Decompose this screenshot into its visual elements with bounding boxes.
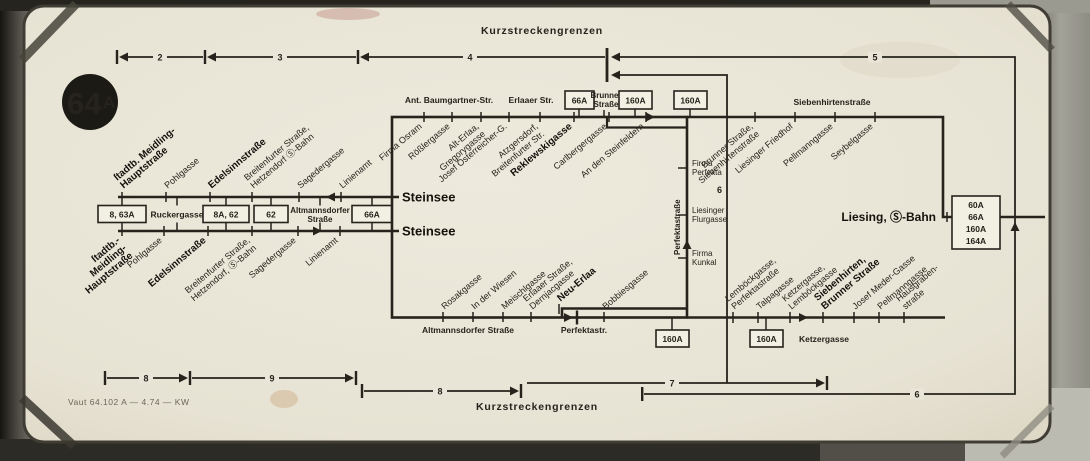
terminal-164a: 164A xyxy=(966,236,986,246)
stain-tan xyxy=(270,390,298,408)
terminal-60a: 60A xyxy=(968,200,984,210)
badge-number: 64 xyxy=(67,86,102,121)
connection-66a: 66A xyxy=(364,210,380,220)
line-badge: 64 A xyxy=(62,74,118,130)
connection-8-63a: 8, 63A xyxy=(109,210,134,220)
stop-liesinger-flurgasse: Liesinger Flurgasse xyxy=(692,206,728,224)
segment-8b: 8 xyxy=(437,387,442,397)
stop-line1: Liesinger xyxy=(692,206,725,215)
box-160a-south-label-1: 160A xyxy=(662,334,682,344)
stain-pink xyxy=(316,8,380,20)
top-scale-title: Kurzstreckengrenzen xyxy=(481,25,603,37)
label-erlaaer-str: Erlaaer Str. xyxy=(509,95,554,105)
label-perfektastr: Perfektastr. xyxy=(561,325,607,335)
segment-7: 7 xyxy=(669,379,674,389)
terminus-liesing: Liesing, Ⓢ-Bahn xyxy=(841,209,936,224)
segment-3: 3 xyxy=(277,53,282,63)
connection-ruckergasse: Ruckergasse xyxy=(151,210,204,220)
sign-svg: 64 A Kurzstreckengrenzen 2 3 4 5 6 8, 63… xyxy=(0,0,1090,461)
label-brunner-1: Brunner xyxy=(590,91,621,100)
terminus-steinsee-lower: Steinsee xyxy=(402,224,455,239)
label-ant-baumgartner: Ant. Baumgartner-Str. xyxy=(405,95,493,105)
label-siebenhirtenstrasse: Siebenhirtenstraße xyxy=(794,97,871,107)
terminal-66a: 66A xyxy=(968,212,984,222)
stop-line2: Kunkal xyxy=(692,258,717,267)
segment-4: 4 xyxy=(467,53,472,63)
label-altmannsdorfer-sued: Altmannsdorfer Straße xyxy=(422,325,514,335)
segment-2: 2 xyxy=(157,53,162,63)
label-brunner-2: Straße xyxy=(594,100,619,109)
box-160a-label-2: 160A xyxy=(680,96,700,106)
segment-5: 5 xyxy=(872,53,877,63)
connection-altmannsdorfer-2: Straße xyxy=(308,215,333,224)
segment-6-vertical: 6 xyxy=(717,185,722,195)
connection-62: 62 xyxy=(266,210,276,220)
box-160a-label-1: 160A xyxy=(625,96,645,106)
badge-suffix: A xyxy=(103,93,115,112)
bottom-scale-title: Kurzstreckengrenzen xyxy=(476,401,598,413)
south-bar xyxy=(576,311,578,325)
printer-imprint: Vaut 64.102 A — 4.74 — KW xyxy=(68,397,190,407)
label-ketzergasse: Ketzergasse xyxy=(799,334,849,344)
box-160a-south-label-2: 160A xyxy=(756,334,776,344)
stop-line1: Firma xyxy=(692,249,713,258)
segment-8a: 8 xyxy=(143,374,148,384)
box-66a-label: 66A xyxy=(572,96,588,106)
terminus-steinsee-upper: Steinsee xyxy=(402,190,455,205)
street-perfektastrasse-vertical: Perfektastraße xyxy=(673,199,682,255)
segment-6: 6 xyxy=(914,390,919,400)
stain-soft xyxy=(840,42,960,78)
terminal-160a: 160A xyxy=(966,224,986,234)
photo-of-route-sign: 64 A Kurzstreckengrenzen 2 3 4 5 6 8, 63… xyxy=(0,0,1090,461)
segment-9: 9 xyxy=(269,374,274,384)
connection-altmannsdorfer-1: Altmannsdorfer xyxy=(290,206,350,215)
stop-line2: Flurgasse xyxy=(692,215,728,224)
connection-8a-62: 8A, 62 xyxy=(213,210,238,220)
